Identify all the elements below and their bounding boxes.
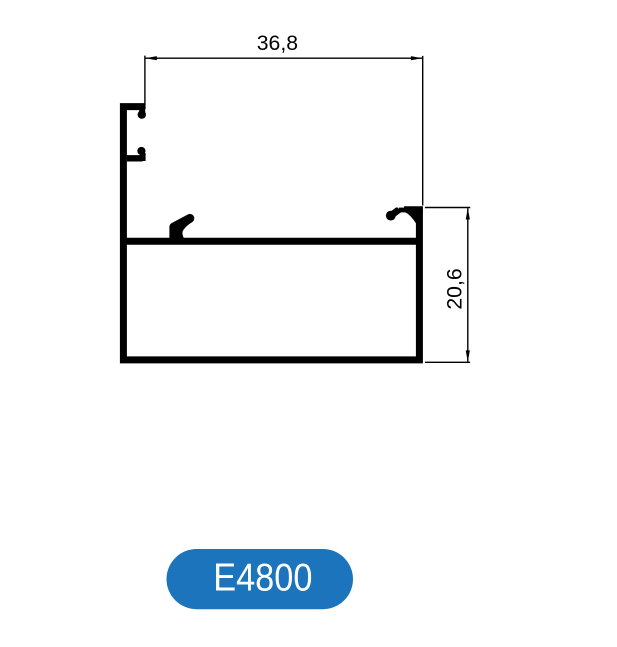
- svg-text:20,6: 20,6: [443, 268, 466, 309]
- svg-text:E4800: E4800: [213, 555, 312, 599]
- svg-text:36,8: 36,8: [257, 32, 298, 55]
